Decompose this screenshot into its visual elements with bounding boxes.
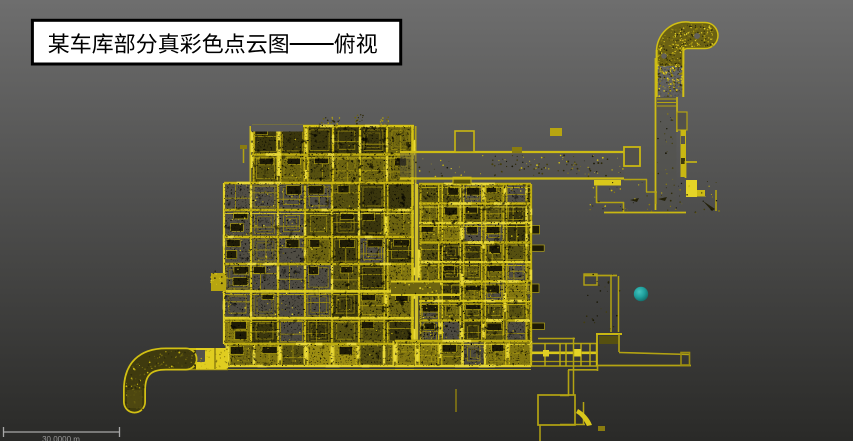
svg-text:30.0000 m: 30.0000 m <box>42 435 80 441</box>
